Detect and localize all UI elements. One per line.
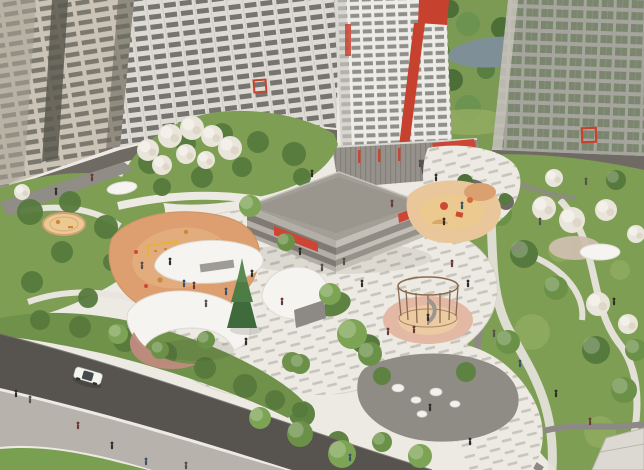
pedestrian [493,330,496,338]
blossom-tree [586,292,610,316]
courtyard-tree [358,342,382,366]
shrub [247,131,269,153]
blossom-tree [618,314,638,334]
podium-red-post [378,149,381,162]
spring-toy [157,277,162,282]
podium-red-post [358,150,361,163]
play-equipment [56,220,60,224]
pedestrian [225,288,228,296]
shrub [59,191,81,213]
podium-red-post [398,148,401,161]
spring-toy [144,284,148,288]
blossom-tree [218,136,242,160]
blossom-tree [158,124,182,148]
spring-toy [184,230,188,234]
pedestrian [281,298,284,306]
pedestrian [443,218,446,226]
pedestrian [469,438,472,446]
pedestrian [589,418,592,426]
shrub [191,166,213,188]
pedestrian [343,258,346,266]
pedestrian [145,458,148,466]
hedge-shrub [292,402,308,418]
courtyard-tree [249,407,271,429]
pedestrian [461,202,464,210]
pedestrian [555,390,558,398]
pedestrian [185,462,188,470]
courtyard-tree [151,341,169,359]
courtyard-tree [197,331,215,349]
rendering-canvas [0,0,644,470]
pedestrian [467,280,470,288]
pedestrian [193,282,196,290]
pedestrian [251,270,254,278]
blossom-tree [532,196,556,220]
courtyard-aerial-rendering [0,0,644,470]
park-tree [510,240,538,268]
shrub [282,142,306,166]
courtyard-tree [277,233,295,251]
pedestrian [91,174,94,182]
sand-pit [43,213,85,235]
pedestrian [311,170,314,178]
shrub [78,288,98,308]
pedestrian [429,404,432,412]
bed-tree [499,193,511,205]
shrub [232,157,252,177]
pedestrian [349,454,352,462]
park-tree [456,12,480,36]
blossom-tree [197,151,215,169]
blossom-tree [14,184,30,200]
round-canopy [580,244,620,260]
shrub [17,199,43,225]
courtyard-tree [287,421,313,447]
canopy-shadow [158,339,234,361]
pedestrian [451,260,454,268]
pedestrian [299,248,302,256]
meadow-patch [610,260,630,280]
pedestrian [435,174,438,182]
courtyard-tree [239,195,261,217]
shrub [21,271,43,293]
hedge-shrub [69,316,91,338]
blossom-tree [152,155,172,175]
boulder-seat [430,388,442,396]
park-tree [496,330,520,354]
courtyard-tree [372,432,392,452]
blossom-tree [559,207,585,233]
tower-red-top [418,0,449,25]
plaza-shrub [456,362,476,382]
pedestrian [111,442,114,450]
park-tree [582,336,610,364]
hedge-shrub [233,374,257,398]
spring-toy [134,250,138,254]
hedge-shrub [265,390,285,410]
park-tree [544,276,568,300]
shrub [51,241,73,263]
pedestrian [141,262,144,270]
pedestrian [29,396,32,404]
pedestrian [361,280,364,288]
play-equipment-red [440,202,448,210]
tower-red-strip-left [345,24,351,56]
blossom-tree [595,199,617,221]
swing-seat [164,248,167,250]
pedestrian [205,300,208,308]
park-tree [606,170,626,190]
pedestrian [169,258,172,266]
pedestrian [413,326,416,334]
blossom-tree [176,144,196,164]
courtyard-tree [108,324,128,344]
blossom-tree [545,169,563,187]
pedestrian [539,218,542,226]
boulder-seat [417,411,427,418]
pedestrian [183,280,186,288]
pedestrian [55,188,58,196]
blossom-tree [180,116,204,140]
pedestrian [15,390,18,398]
pedestrian [519,360,522,368]
courtyard-tree [290,354,310,374]
pedestrian [77,422,80,430]
pedestrian [613,298,616,306]
park-tree [611,377,637,403]
pedestrian [245,338,248,346]
boulder-seat [411,397,421,404]
hedge-shrub [30,310,50,330]
boulder-seat [392,384,404,392]
courtyard-tree [328,440,356,468]
pedestrian [419,160,422,168]
pedestrian [585,178,588,186]
shrub [153,178,171,196]
courtyard-tree [408,444,432,468]
swing-seat [154,250,157,252]
play-equipment [68,226,73,228]
pedestrian [387,328,390,336]
pedestrian [321,264,324,272]
play-equipment-red [467,197,473,203]
plaza-shrub [373,367,391,385]
boulder-seat [450,401,460,408]
courtyard-tree [319,283,341,305]
pedestrian [427,314,430,322]
pedestrian [391,200,394,208]
